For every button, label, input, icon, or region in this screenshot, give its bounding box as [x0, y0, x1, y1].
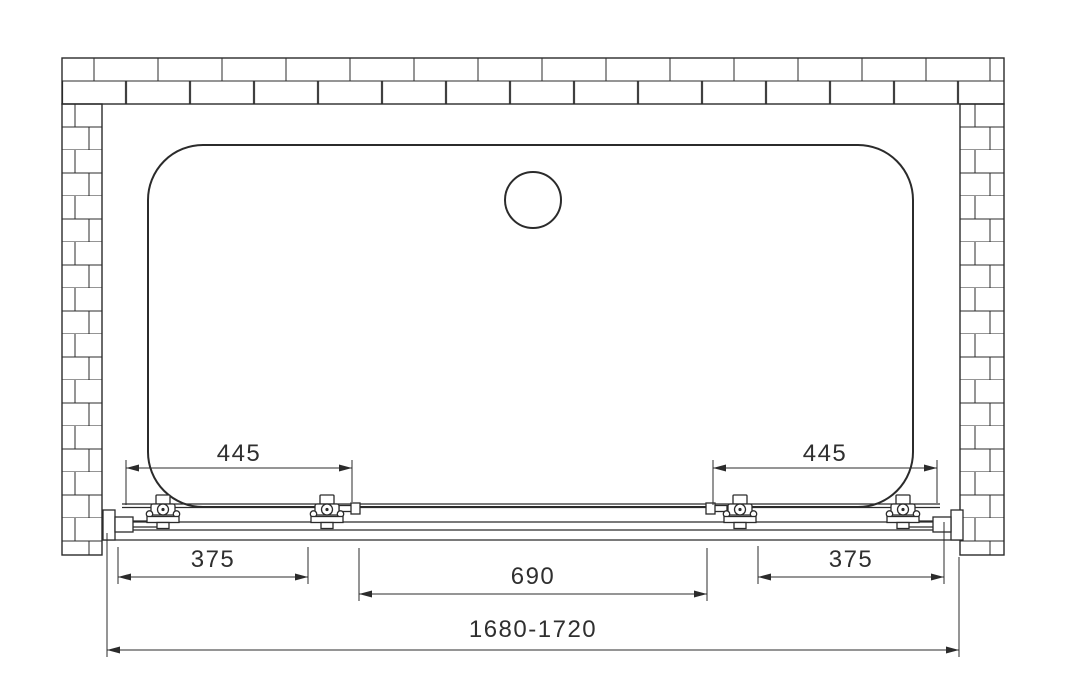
roller-assembly-4 — [886, 495, 919, 529]
dim-label-left-panel: 375 — [191, 546, 236, 573]
technical-drawing-canvas: 445 445 375 690 375 1680-1720 — [0, 0, 1066, 698]
door-track — [102, 504, 960, 540]
brick-wall-left — [62, 104, 102, 555]
bumper-right — [706, 503, 715, 514]
track-frame-lines — [102, 522, 960, 540]
shower-enclosure-top-view: 445 445 375 690 375 1680-1720 — [0, 0, 1066, 698]
brick-wall-top — [62, 58, 1004, 104]
dim-label-left-door: 445 — [217, 440, 262, 467]
dim-label-overall-width: 1680-1720 — [469, 616, 597, 643]
bumper-left — [351, 503, 360, 514]
drain-circle — [505, 172, 561, 228]
dim-label-center-opening: 690 — [511, 563, 556, 590]
dim-label-right-door: 445 — [803, 440, 848, 467]
dim-label-right-panel: 375 — [829, 546, 874, 573]
brick-wall-right — [960, 104, 1004, 555]
